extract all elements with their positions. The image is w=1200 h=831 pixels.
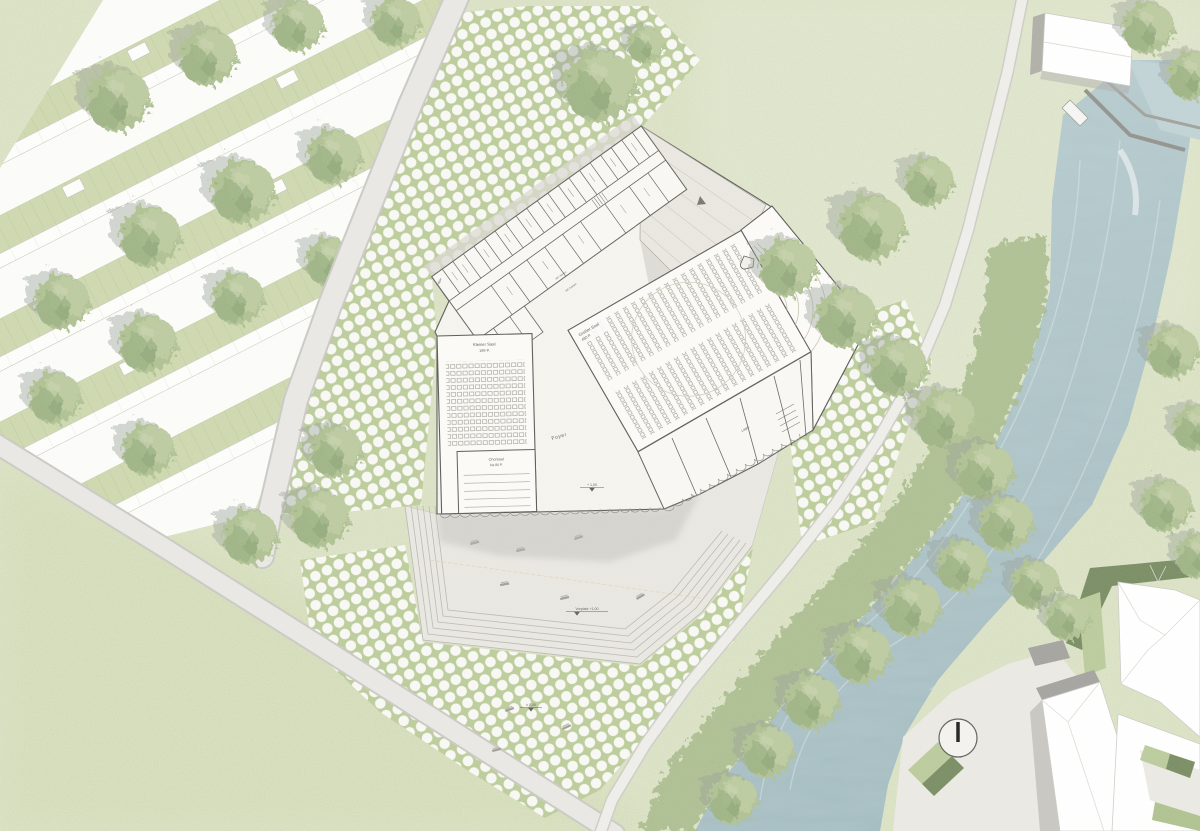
site-plan: Lager WC Herren WC Damen Kleiner Saal 19…	[0, 0, 1200, 831]
paper-grain	[0, 0, 1200, 831]
